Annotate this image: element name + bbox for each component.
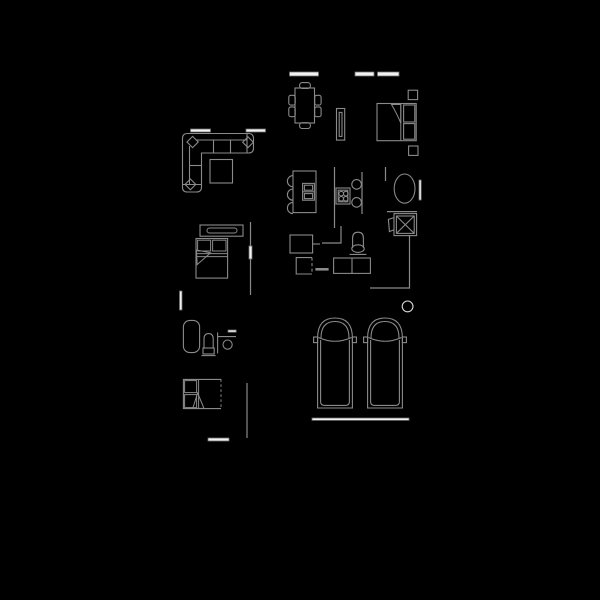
window-bath-sink	[228, 330, 236, 332]
floor-plan-stage	[0, 0, 600, 600]
window-bedroom1-right	[249, 246, 252, 259]
background	[0, 0, 600, 600]
window-master-top	[378, 72, 400, 76]
window-bath-left	[180, 291, 183, 310]
floor-plan-canvas	[0, 0, 600, 600]
window-bedroom2-bottom	[208, 438, 229, 441]
window-dining-top	[290, 72, 319, 76]
garage-door-line	[312, 418, 409, 420]
window-utility-right	[419, 180, 421, 200]
window-living-2	[246, 129, 266, 132]
window-hall-top	[355, 72, 374, 76]
window-living-1	[191, 129, 211, 132]
cabinet-bar	[315, 268, 328, 271]
